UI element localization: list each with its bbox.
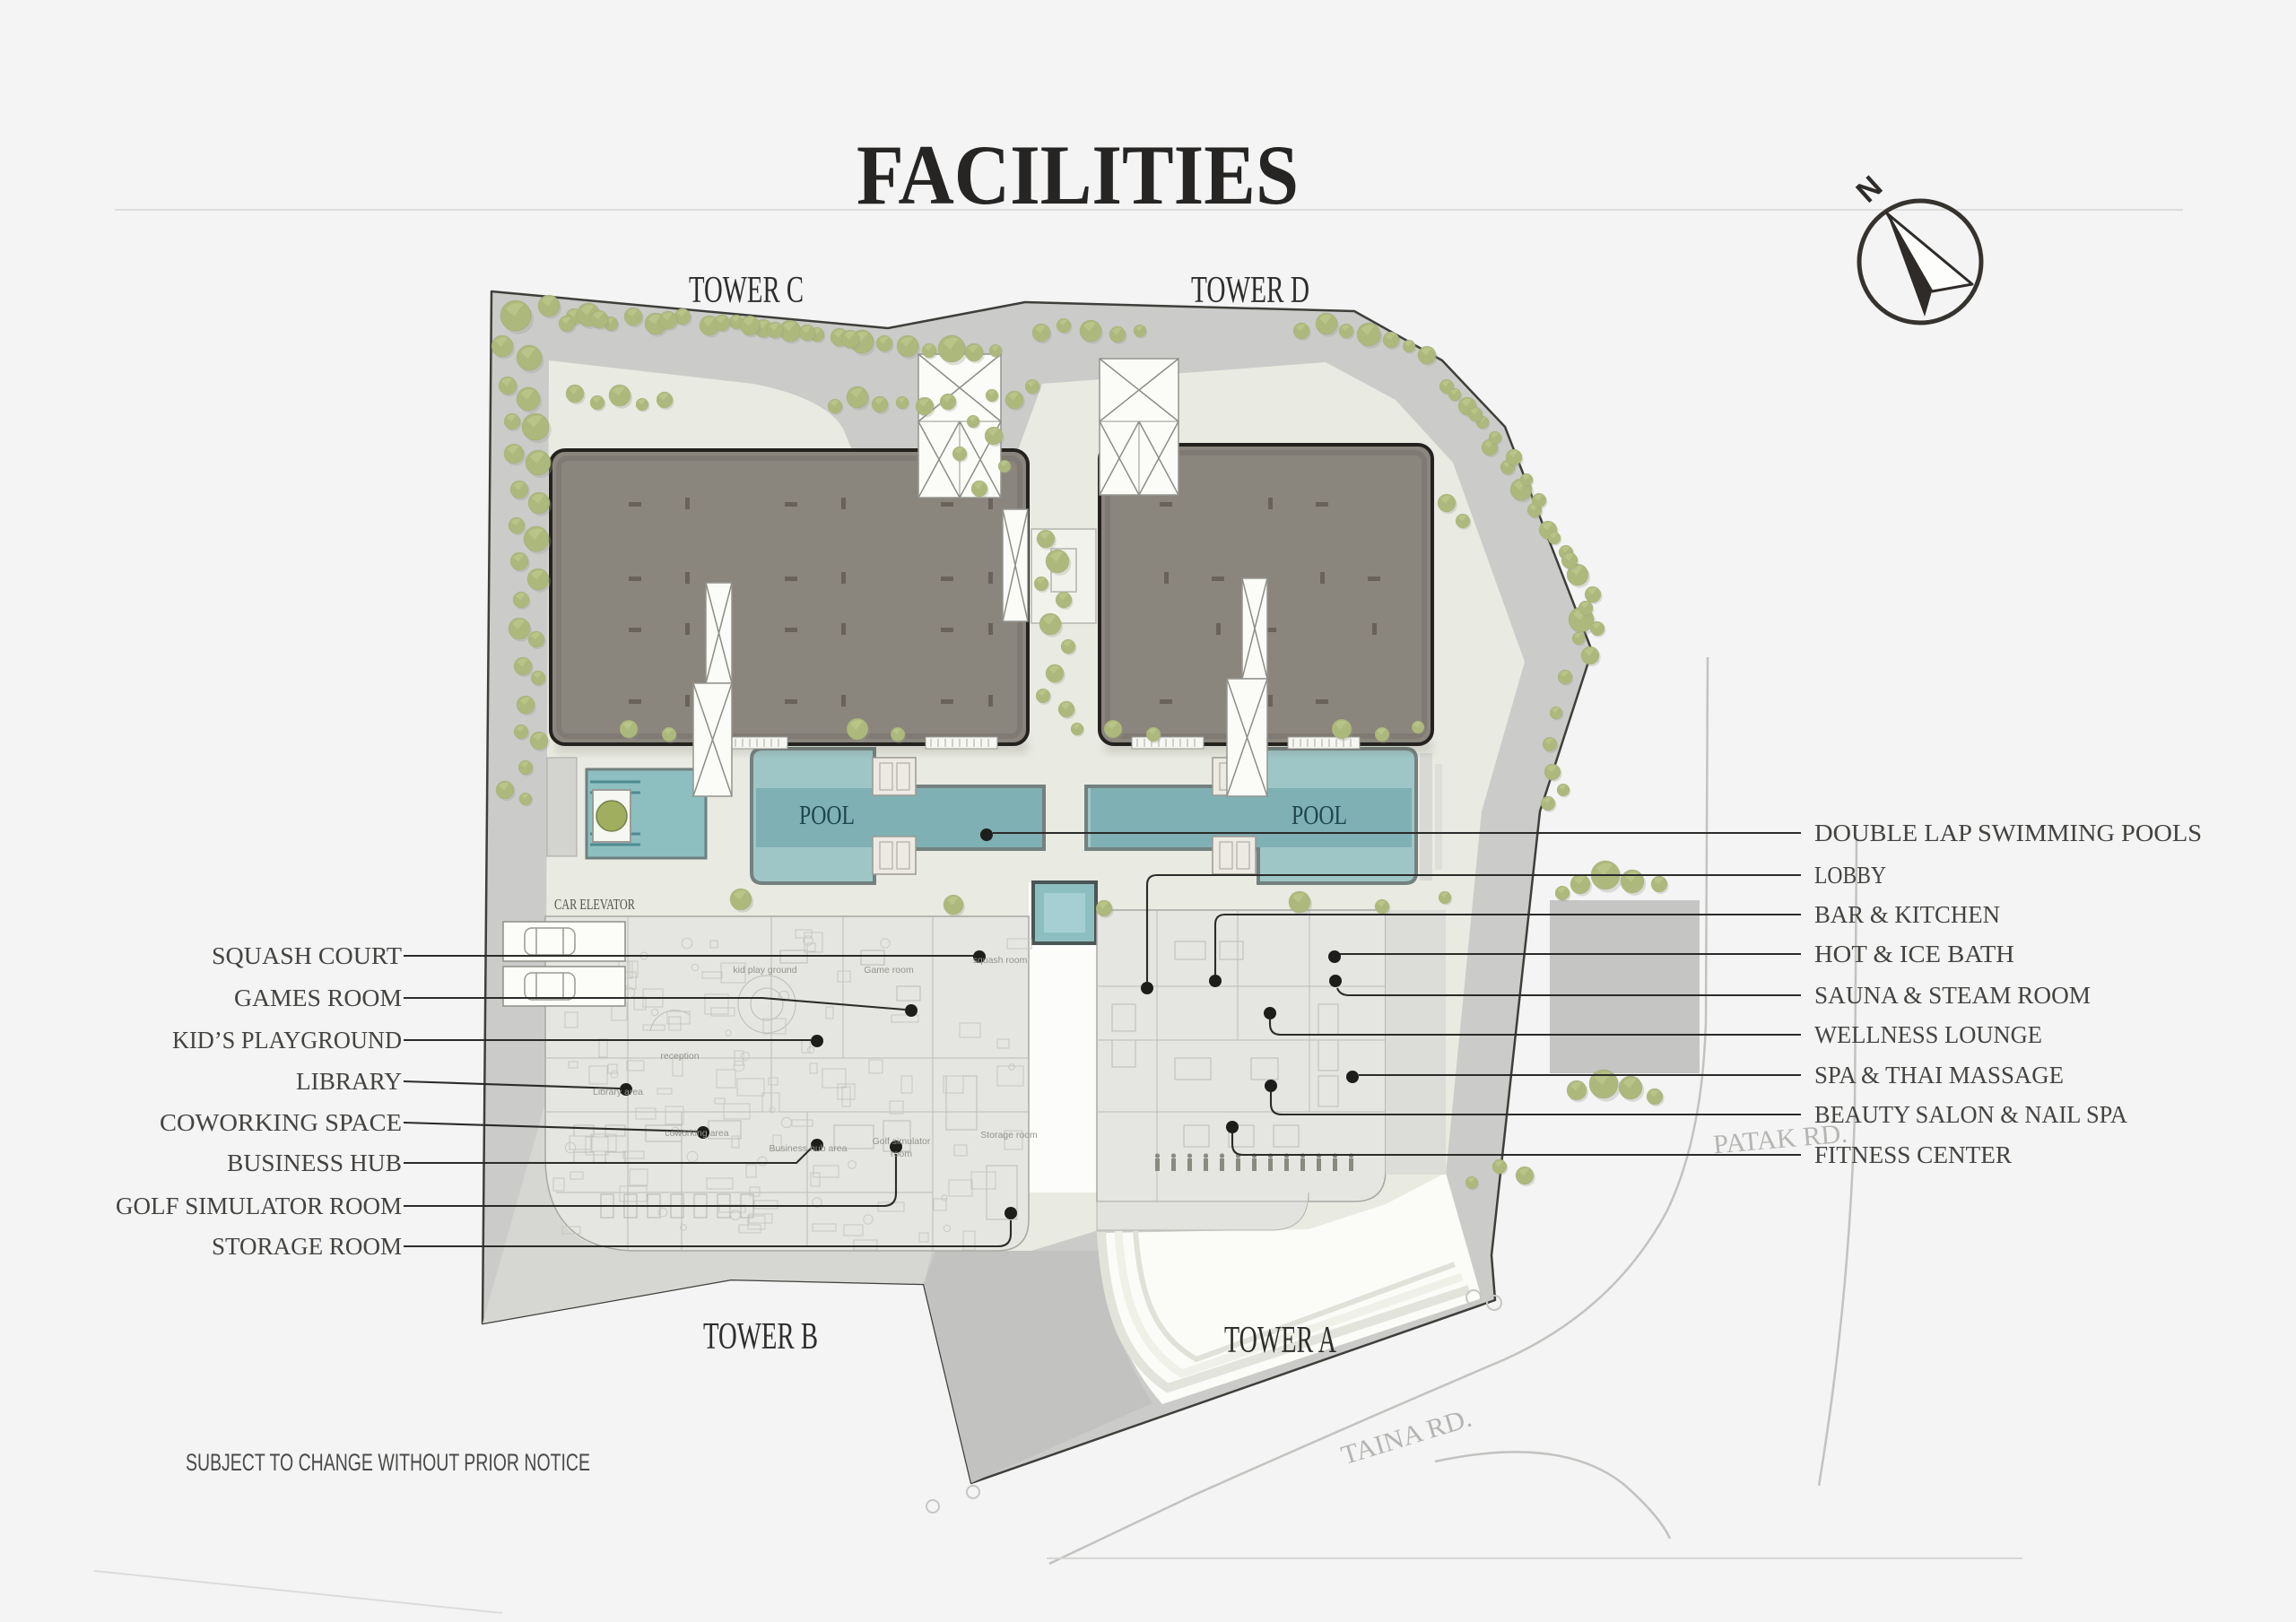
svg-text:SQUASH COURT: SQUASH COURT <box>212 942 403 969</box>
svg-text:room: room <box>891 1149 912 1159</box>
svg-text:COWORKING SPACE: COWORKING SPACE <box>160 1109 402 1136</box>
svg-text:TOWER D: TOWER D <box>1191 270 1309 311</box>
svg-text:LOBBY: LOBBY <box>1814 862 1886 889</box>
svg-text:BEAUTY SALON & NAIL SPA: BEAUTY SALON & NAIL SPA <box>1814 1101 2127 1128</box>
svg-text:SPA & THAI MASSAGE: SPA & THAI MASSAGE <box>1814 1062 2064 1089</box>
svg-text:STORAGE ROOM: STORAGE ROOM <box>212 1233 402 1260</box>
svg-text:BUSINESS HUB: BUSINESS HUB <box>227 1149 402 1176</box>
svg-text:TOWER A: TOWER A <box>1224 1320 1336 1361</box>
svg-text:Business hub area: Business hub area <box>770 1143 848 1154</box>
svg-text:SUBJECT TO CHANGE WITHOUT PRIO: SUBJECT TO CHANGE WITHOUT PRIOR NOTICE <box>186 1449 590 1476</box>
svg-text:POOL: POOL <box>1291 799 1347 830</box>
svg-text:CAR ELEVATOR: CAR ELEVATOR <box>554 896 635 913</box>
svg-text:DOUBLE LAP SWIMMING POOLS: DOUBLE LAP SWIMMING POOLS <box>1814 820 2202 846</box>
svg-text:kid play ground: kid play ground <box>733 965 796 976</box>
svg-text:GOLF SIMULATOR ROOM: GOLF SIMULATOR ROOM <box>116 1193 402 1219</box>
svg-text:coworking area: coworking area <box>665 1128 728 1139</box>
svg-text:WELLNESS LOUNGE: WELLNESS LOUNGE <box>1814 1021 2042 1048</box>
svg-text:TOWER B: TOWER B <box>703 1316 818 1357</box>
svg-text:HOT & ICE BATH: HOT & ICE BATH <box>1814 941 2014 967</box>
svg-text:LIBRARY: LIBRARY <box>296 1068 402 1095</box>
svg-text:Golf simulator: Golf simulator <box>873 1136 931 1147</box>
svg-text:reception: reception <box>660 1051 699 1062</box>
svg-text:KID’S PLAYGROUND: KID’S PLAYGROUND <box>172 1027 402 1054</box>
svg-text:Storage room: Storage room <box>980 1130 1038 1141</box>
svg-text:TOWER C: TOWER C <box>689 270 804 311</box>
svg-text:squash room: squash room <box>973 955 1028 966</box>
svg-text:POOL: POOL <box>799 799 855 830</box>
svg-text:Game room: Game room <box>864 965 914 976</box>
svg-text:FACILITIES: FACILITIES <box>857 127 1299 222</box>
svg-text:SAUNA & STEAM ROOM: SAUNA & STEAM ROOM <box>1814 982 2091 1009</box>
svg-text:BAR & KITCHEN: BAR & KITCHEN <box>1814 901 2000 928</box>
svg-text:Library area: Library area <box>593 1087 643 1097</box>
svg-text:GAMES ROOM: GAMES ROOM <box>234 984 402 1011</box>
